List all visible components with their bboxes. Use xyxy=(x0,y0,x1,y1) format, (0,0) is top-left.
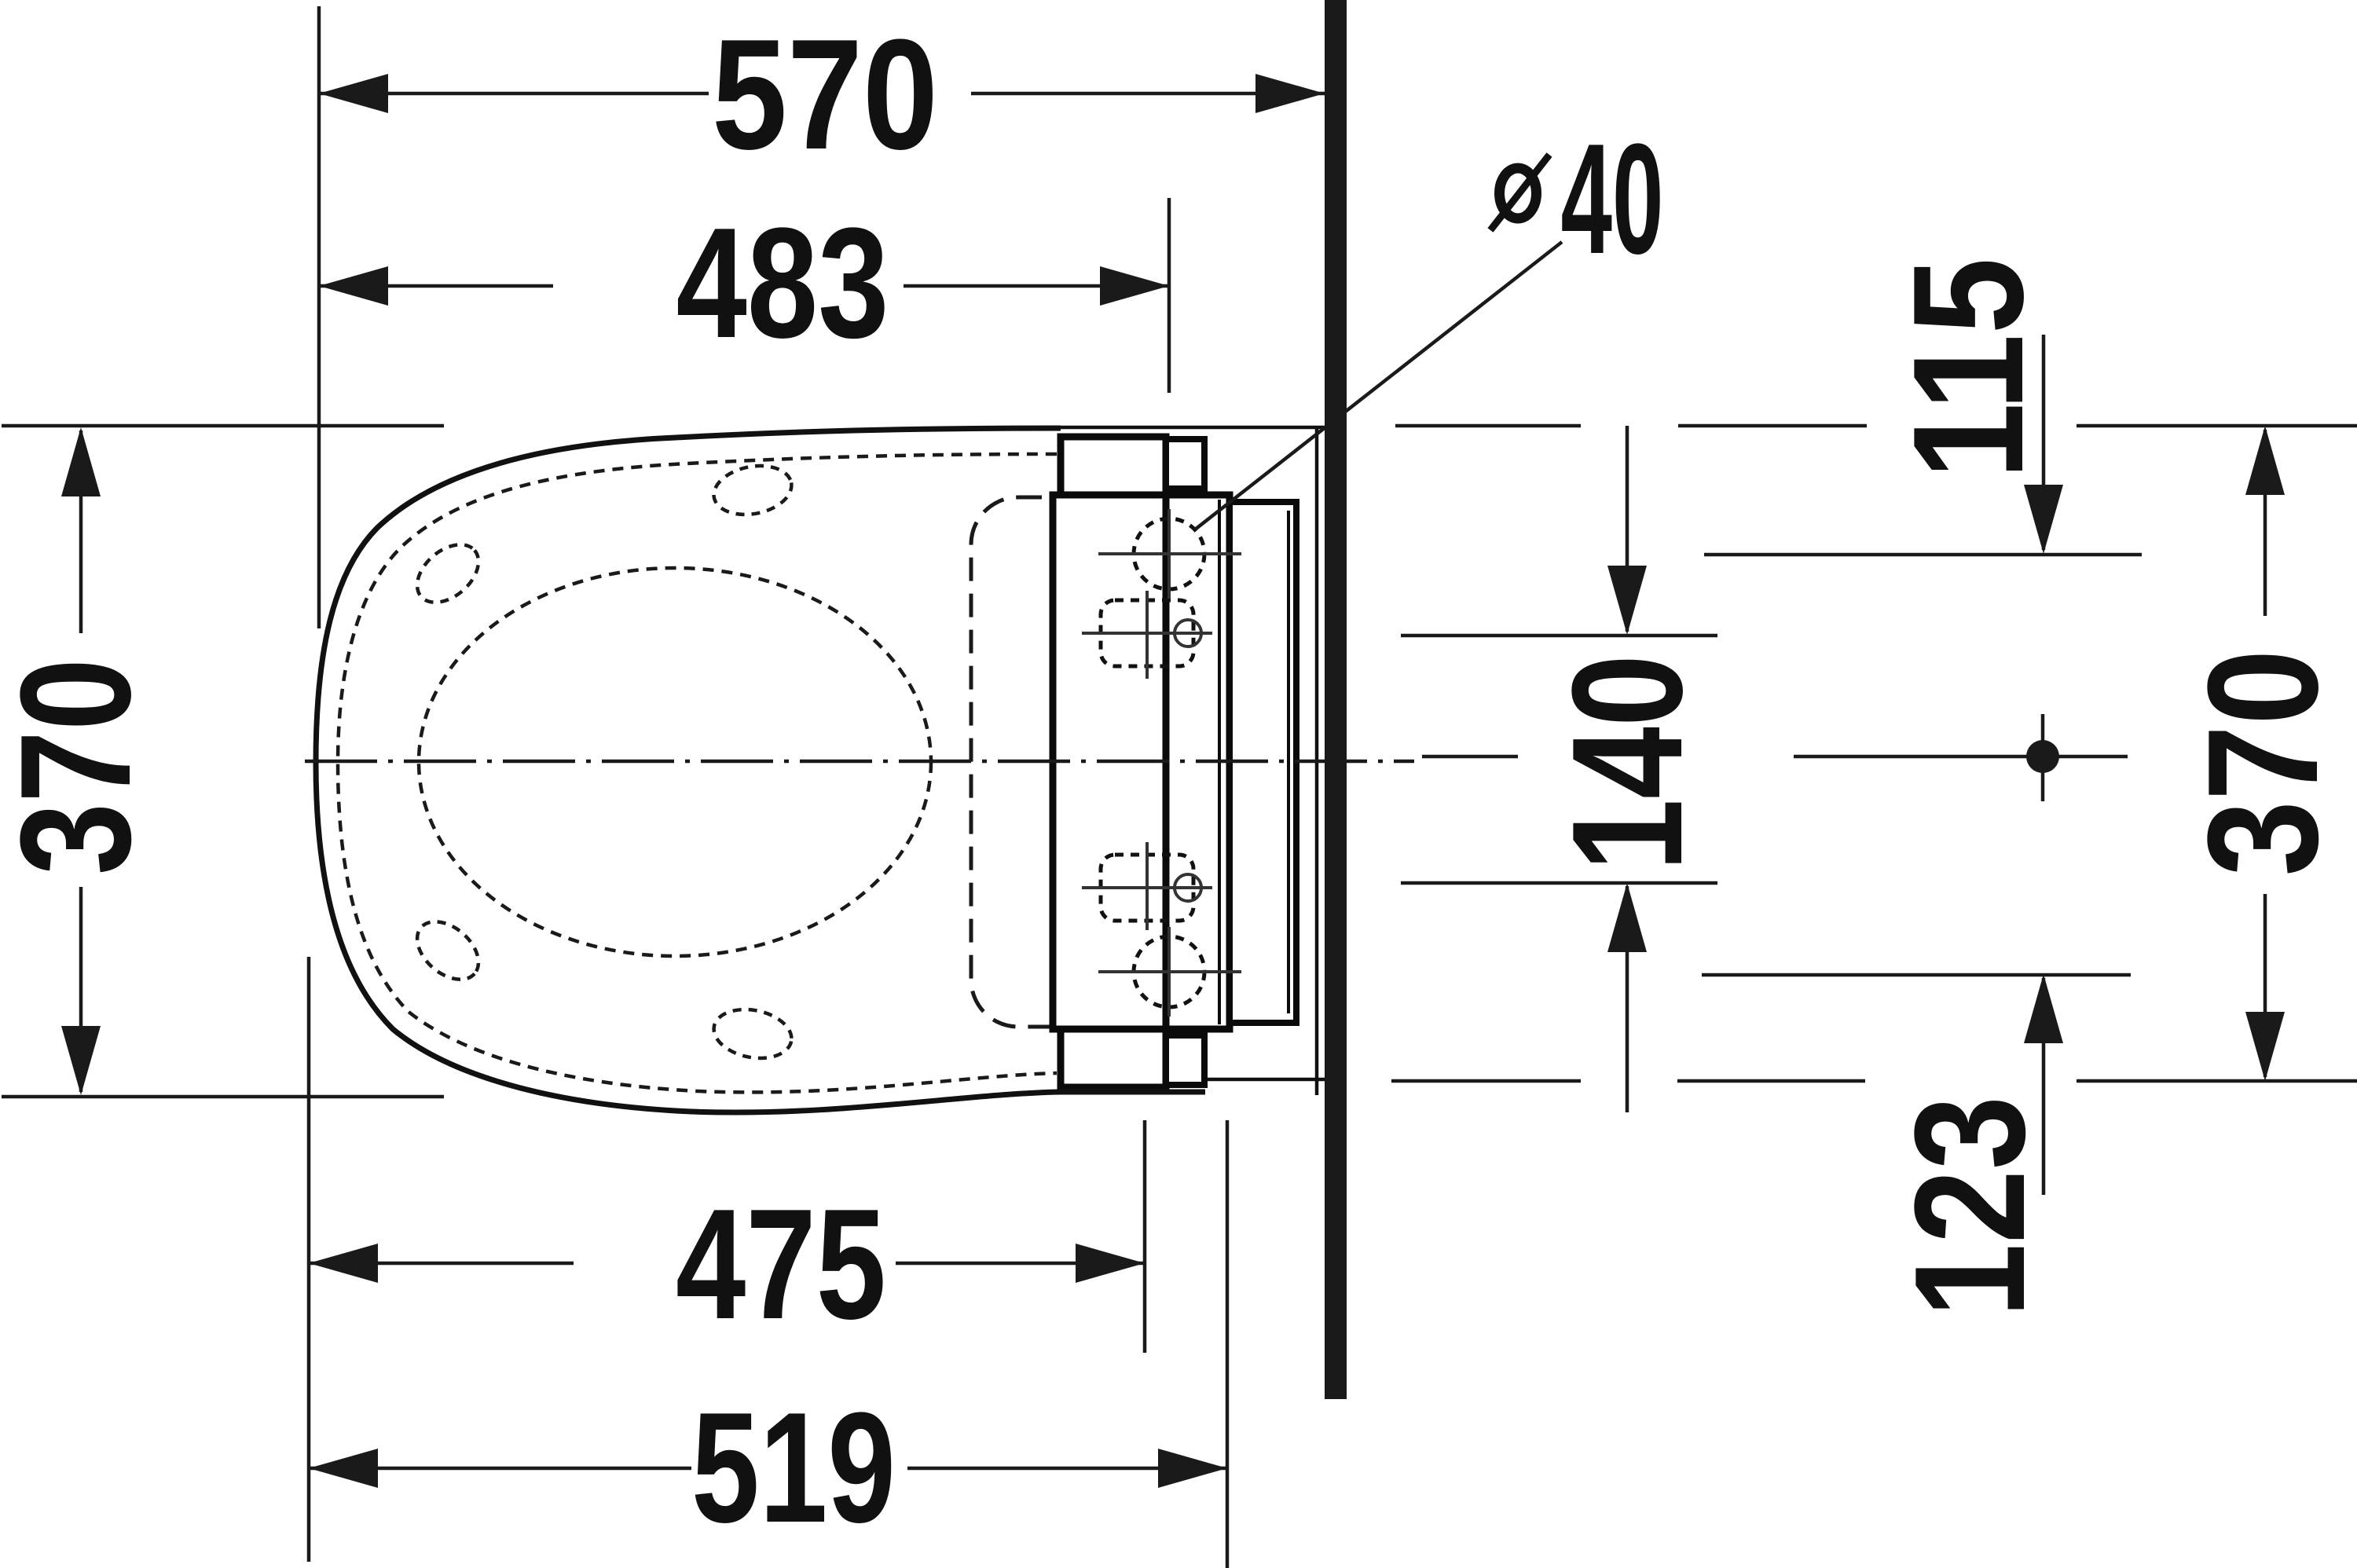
svg-text:519: 519 xyxy=(691,1380,896,1555)
svg-text:370: 370 xyxy=(0,658,163,875)
svg-text:40: 40 xyxy=(1561,112,1664,287)
svg-text:483: 483 xyxy=(676,196,889,371)
svg-text:123: 123 xyxy=(1882,1096,2058,1317)
svg-text:140: 140 xyxy=(1540,654,1715,871)
svg-text:570: 570 xyxy=(712,7,938,182)
svg-text:475: 475 xyxy=(676,1177,886,1352)
svg-text:115: 115 xyxy=(1881,258,2056,479)
svg-text:370: 370 xyxy=(2176,650,2351,877)
